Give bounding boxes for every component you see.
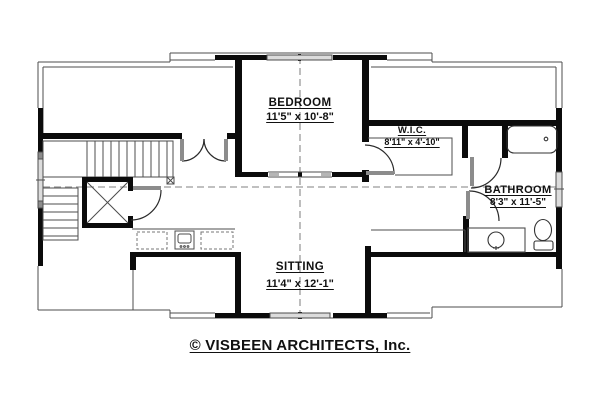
french-door-right-leaf [224,139,228,161]
wic-label: W.I.C. [362,125,462,136]
appliance-dashed-2 [201,232,233,249]
sitting-window [270,313,330,318]
sitting-label: SITTING [230,261,370,273]
bedroom-label: BEDROOM [230,97,370,109]
kitchen-sink [175,231,194,249]
doors [131,139,501,221]
french-door-left-arc [182,139,204,161]
bedroom-window [267,55,332,60]
bathroom-label: BATHROOM [458,184,578,196]
architect-credit: © VISBEEN ARCHITECTS, Inc. [0,337,600,354]
floor-plan: BEDROOM 11'5" x 10'-8" W.I.C. 8'11" x 4'… [0,0,600,400]
elevator-shaft [82,177,133,228]
stairs-upper-run [43,141,173,177]
hall-door-leaf [133,186,161,190]
french-door-right-arc [204,139,226,161]
kitchenette [132,229,465,252]
bathroom-dims: 8'3" x 11'-5" [458,197,578,208]
counter-edge-right [371,230,465,252]
vanity-sink [468,228,525,252]
appliance-dashed-1 [137,232,167,249]
wic-door-arc [365,145,394,174]
toilet [534,220,553,251]
bathtub [507,126,557,153]
elevator-x [87,182,128,223]
bedroom-dims: 11'5" x 10'-8" [230,111,370,123]
sitting-dims: 11'4" x 12'-1" [230,278,370,290]
wic-door-leaf [366,171,394,175]
hall-door-arc [131,190,161,220]
french-door-left-leaf [180,139,184,161]
wic-dims: 8'11" x 4'-10" [362,137,462,147]
bathroom-upper-door-leaf [470,157,474,186]
